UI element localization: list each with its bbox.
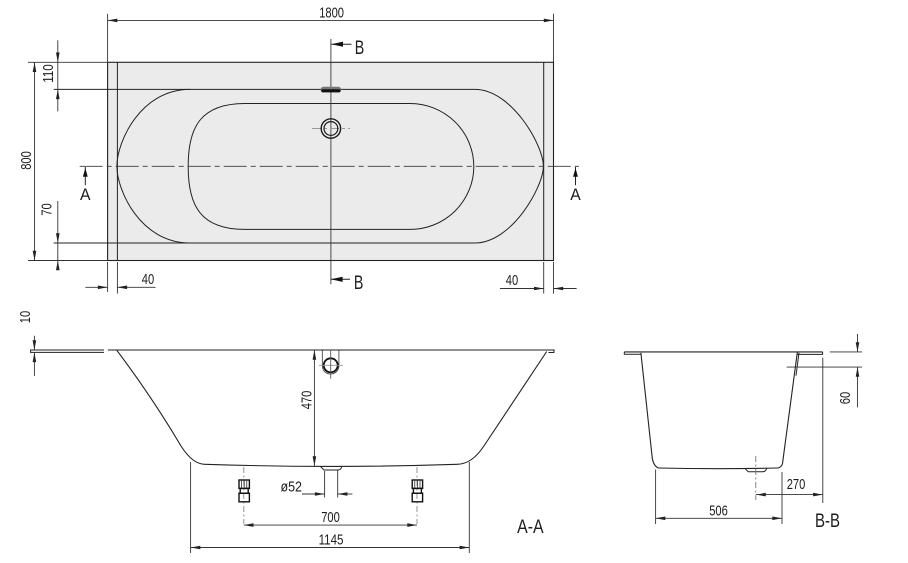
svg-text:70: 70 <box>39 203 56 215</box>
svg-text:10: 10 <box>17 311 34 323</box>
svg-text:800: 800 <box>18 151 35 170</box>
svg-text:700: 700 <box>321 509 340 526</box>
svg-text:1800: 1800 <box>319 5 344 22</box>
svg-text:270: 270 <box>787 476 806 493</box>
svg-text:60: 60 <box>837 392 854 404</box>
svg-text:A: A <box>570 185 581 204</box>
svg-text:40: 40 <box>506 272 518 289</box>
svg-text:506: 506 <box>709 503 728 520</box>
svg-text:1145: 1145 <box>319 532 344 549</box>
svg-text:B: B <box>354 273 364 294</box>
svg-text:A: A <box>80 185 91 204</box>
svg-text:ø52: ø52 <box>281 479 303 496</box>
svg-text:40: 40 <box>142 271 154 288</box>
svg-text:B: B <box>355 38 365 59</box>
svg-text:110: 110 <box>40 64 57 83</box>
svg-text:B-B: B-B <box>815 511 840 532</box>
svg-text:A-A: A-A <box>517 517 544 538</box>
svg-text:470: 470 <box>299 391 316 410</box>
